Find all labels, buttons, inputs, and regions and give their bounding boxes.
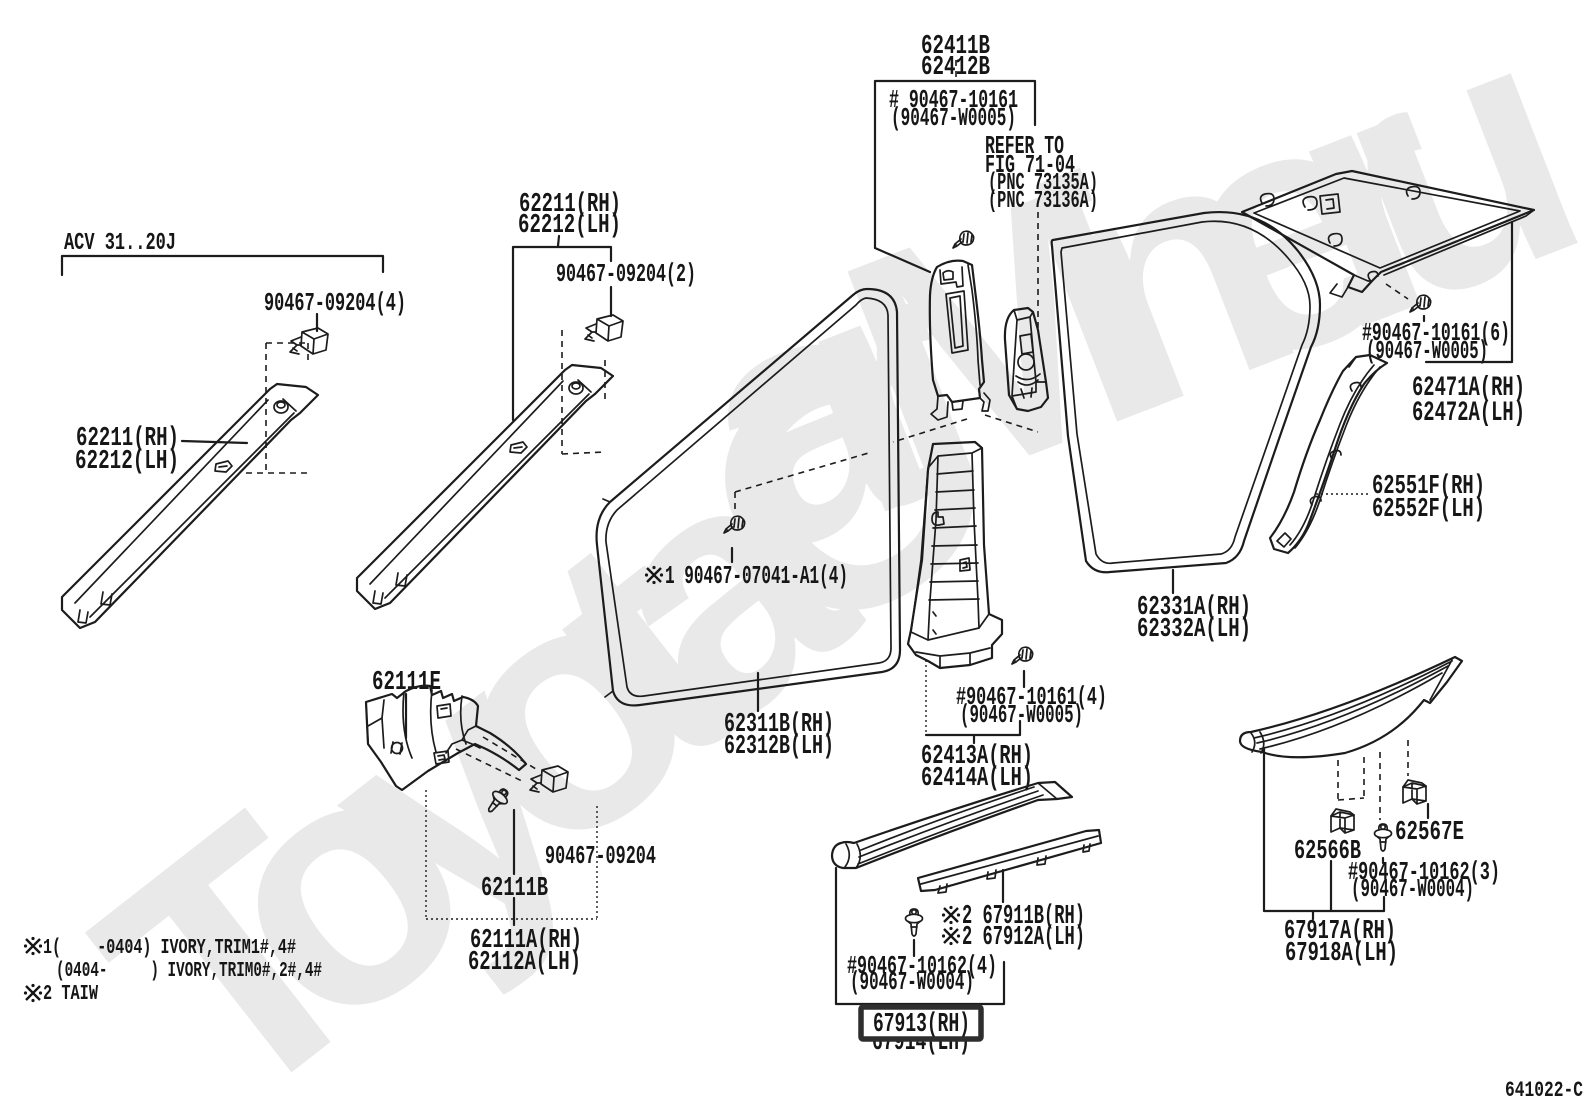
svg-text:(PNC 73136A): (PNC 73136A) [988, 188, 1098, 215]
svg-text:62312B(LH): 62312B(LH) [724, 732, 834, 762]
svg-text:62552F(LH): 62552F(LH) [1372, 495, 1485, 525]
svg-text:62212(LH): 62212(LH) [75, 447, 179, 477]
svg-text:62412B: 62412B [921, 53, 990, 83]
svg-text:90467-09204(2): 90467-09204(2) [556, 259, 696, 289]
svg-text:(0404- ) IVORY,TRIM0#,2#,4: (0404- ) IVORY,TRIM0#,2#,4# [56, 960, 322, 983]
svg-text:2 TAIW: 2 TAIW [43, 983, 98, 1006]
svg-text:641022-C: 641022-C [1505, 1078, 1583, 1099]
svg-text:(90467-W0004): (90467-W0004) [850, 967, 974, 997]
svg-text:90467-09204(4): 90467-09204(4) [264, 288, 406, 318]
svg-text:1( -0404) IVORY,TRIM1#,4#: 1( -0404) IVORY,TRIM1#,4# [43, 937, 296, 960]
svg-text:67918A(LH): 67918A(LH) [1285, 939, 1398, 969]
svg-text:(90467-W0005): (90467-W0005) [891, 103, 1016, 133]
svg-text:62567E: 62567E [1395, 818, 1464, 848]
svg-text:ACV 31..20J: ACV 31..20J [64, 230, 176, 257]
svg-text:62472A(LH): 62472A(LH) [1412, 398, 1525, 429]
svg-text:(90467-W0005): (90467-W0005) [960, 700, 1083, 730]
svg-text:90467-09204: 90467-09204 [545, 841, 656, 871]
svg-text:62212(LH): 62212(LH) [518, 211, 621, 241]
svg-text:62112A(LH): 62112A(LH) [468, 948, 581, 978]
svg-text:67913(RH): 67913(RH) [873, 1010, 970, 1040]
svg-text:62332A(LH): 62332A(LH) [1137, 615, 1251, 645]
svg-text:(90467-W0004): (90467-W0004) [1351, 874, 1474, 904]
svg-text:2 67912A(LH): 2 67912A(LH) [962, 923, 1085, 953]
svg-text:1 90467-07041-A1(4): 1 90467-07041-A1(4) [665, 561, 848, 591]
